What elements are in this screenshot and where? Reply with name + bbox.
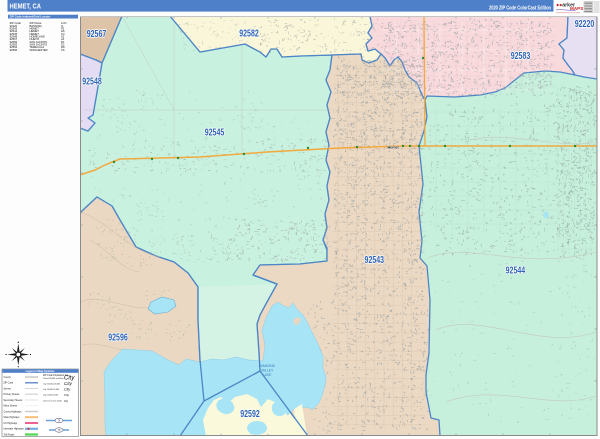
svg-text:HEMET, CA: HEMET, CA bbox=[10, 4, 42, 11]
svg-text:US Highways: US Highways bbox=[4, 423, 19, 425]
svg-text:ZIP Code Indexed/Grid Locator: ZIP Code Indexed/Grid Locator bbox=[10, 15, 52, 19]
svg-text:92592: 92592 bbox=[240, 409, 260, 420]
svg-text:City: City bbox=[64, 381, 73, 386]
svg-text:LAKE: LAKE bbox=[263, 373, 272, 377]
svg-text:92543: 92543 bbox=[365, 255, 385, 266]
svg-text:92582: 92582 bbox=[239, 28, 259, 39]
svg-text:92545: 92545 bbox=[205, 127, 225, 138]
svg-text:2020 ZIP Code ColorCast Editio: 2020 ZIP Code ColorCast Edition bbox=[489, 5, 551, 11]
svg-text:Toll Roads: Toll Roads bbox=[4, 434, 16, 436]
svg-text:ZIP Code: ZIP Code bbox=[4, 383, 14, 385]
svg-text:City: City bbox=[64, 388, 70, 392]
svg-text:92596: 92596 bbox=[108, 332, 128, 343]
svg-text:92567: 92567 bbox=[87, 29, 107, 40]
svg-text:92583: 92583 bbox=[511, 51, 531, 62]
svg-text:Hemet: Hemet bbox=[388, 146, 400, 150]
svg-text:VALLEY: VALLEY bbox=[261, 369, 274, 373]
svg-text:92548: 92548 bbox=[82, 76, 102, 87]
svg-text:City: City bbox=[64, 393, 70, 397]
svg-text:DIAMOND: DIAMOND bbox=[259, 364, 276, 368]
svg-text:92220: 92220 bbox=[575, 19, 595, 30]
svg-text:MAPS: MAPS bbox=[570, 6, 583, 11]
svg-text:92544: 92544 bbox=[506, 266, 526, 277]
svg-text:Legend of Map Symbols: Legend of Map Symbols bbox=[26, 370, 55, 373]
